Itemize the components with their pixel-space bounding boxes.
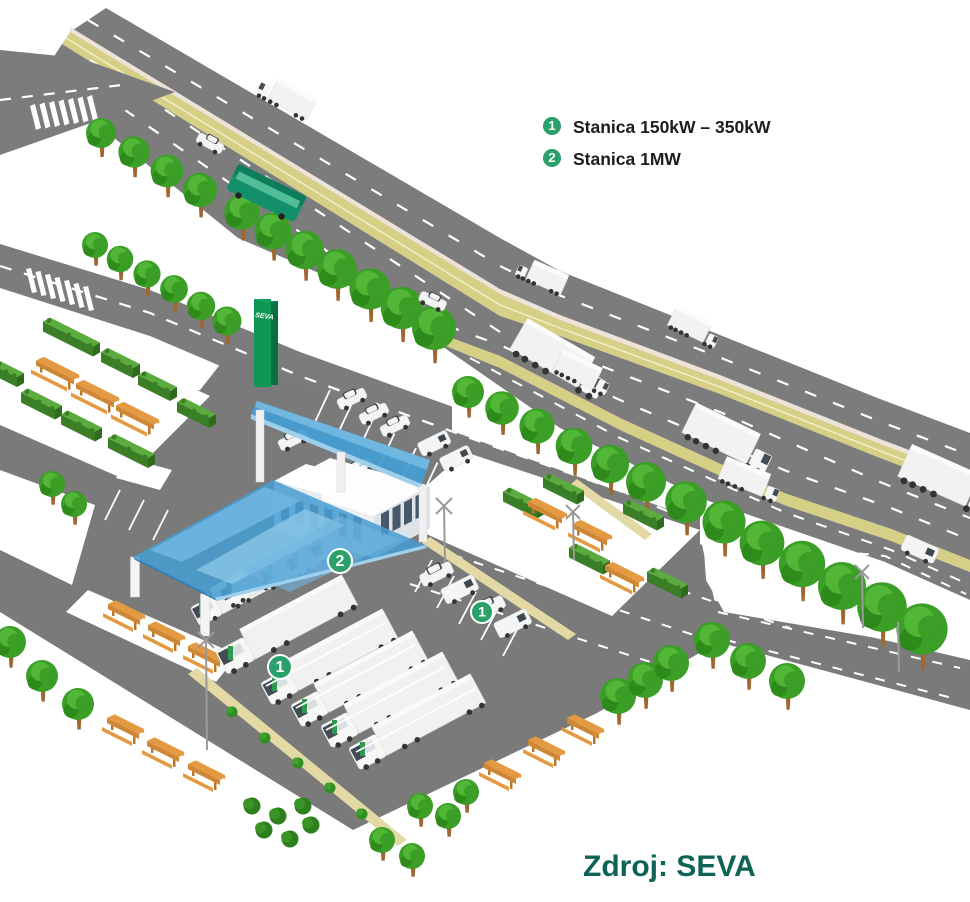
svg-text:1: 1: [548, 118, 555, 133]
svg-text:1: 1: [478, 604, 486, 620]
svg-text:2: 2: [548, 150, 555, 165]
svg-text:Zdroj: SEVA: Zdroj: SEVA: [583, 850, 756, 883]
svg-text:Stanica 1MW: Stanica 1MW: [573, 149, 681, 169]
svg-text:1: 1: [276, 659, 285, 676]
svg-text:2: 2: [336, 553, 345, 570]
svg-text:Stanica 150kW – 350kW: Stanica 150kW – 350kW: [573, 117, 771, 137]
